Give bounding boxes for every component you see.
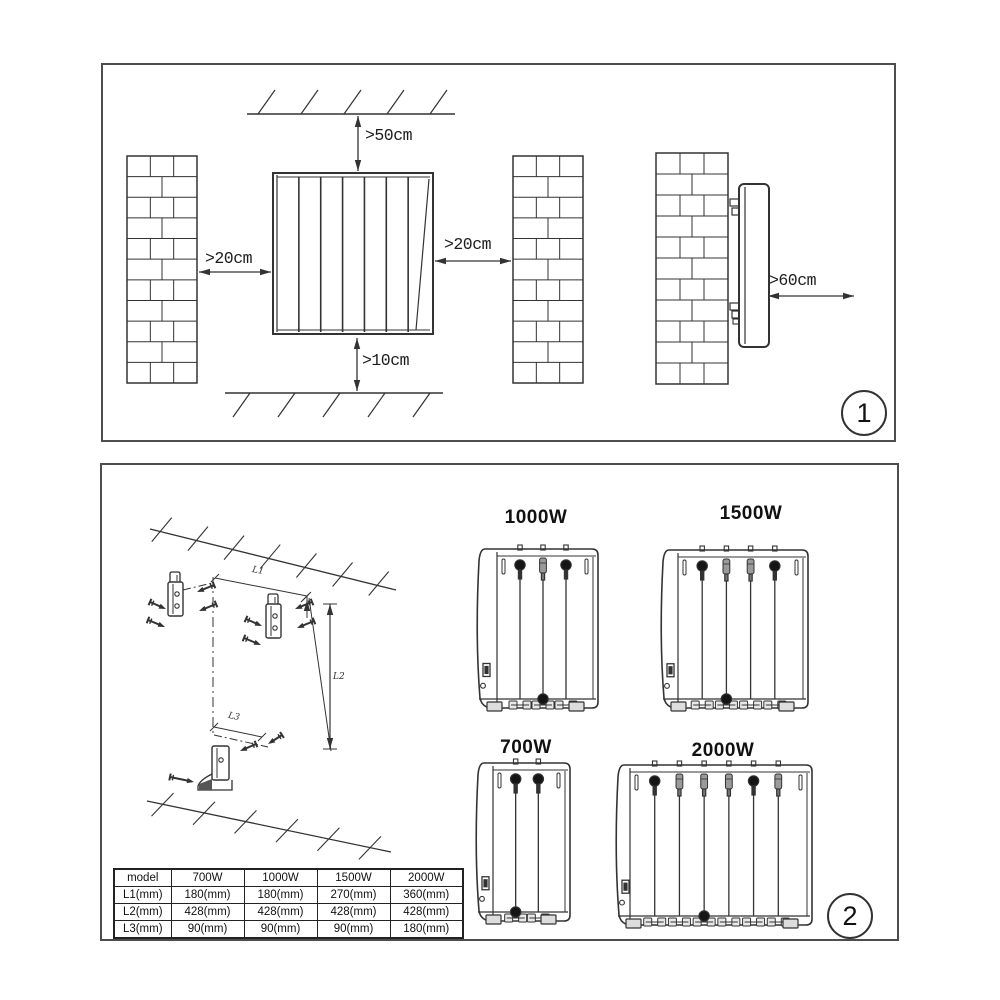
table-row: L2(mm) 428(mm) 428(mm) 428(mm) 428(mm) (114, 904, 463, 921)
table-cell: 428(mm) (171, 904, 244, 921)
unit-label-2000w: 2000W (678, 740, 768, 762)
step-2-badge: 2 (827, 893, 873, 939)
table-cell: 2000W (390, 869, 463, 887)
dim-l3-label: L3 (227, 711, 241, 723)
table-cell: L2(mm) (114, 904, 171, 921)
table-cell: 1500W (317, 869, 390, 887)
table-cell: 180(mm) (244, 887, 317, 904)
step-1-badge: 1 (841, 390, 887, 436)
table-cell: 270(mm) (317, 887, 390, 904)
installation-instructions: >50cm >20cm >20cm >10cm >60cm 1 L1 L2 L3… (0, 0, 1000, 1000)
table-cell: 428(mm) (390, 904, 463, 921)
unit-label-1000w: 1000W (491, 507, 581, 529)
clearance-right-label: >20cm (444, 235, 491, 254)
unit-label-1500w: 1500W (706, 503, 796, 525)
table-cell: L3(mm) (114, 921, 171, 939)
dim-l2-label: L2 (333, 672, 345, 682)
table-cell: 180(mm) (171, 887, 244, 904)
table-cell: 90(mm) (244, 921, 317, 939)
clearance-bottom-label: >10cm (362, 351, 409, 370)
table-cell: 1000W (244, 869, 317, 887)
table-cell: 700W (171, 869, 244, 887)
table-cell: model (114, 869, 171, 887)
dimensions-table: model 700W 1000W 1500W 2000W L1(mm) 180(… (113, 868, 464, 939)
table-cell: 180(mm) (390, 921, 463, 939)
table-cell: 90(mm) (317, 921, 390, 939)
step-1-number: 1 (856, 398, 871, 429)
step-2-number: 2 (842, 901, 857, 932)
clearance-top-label: >50cm (365, 126, 412, 145)
table-cell: 90(mm) (171, 921, 244, 939)
table-header-row: model 700W 1000W 1500W 2000W (114, 869, 463, 887)
table-cell: L1(mm) (114, 887, 171, 904)
table-cell: 428(mm) (317, 904, 390, 921)
table-row: L1(mm) 180(mm) 180(mm) 270(mm) 360(mm) (114, 887, 463, 904)
clearance-left-label: >20cm (205, 249, 252, 268)
table-row: L3(mm) 90(mm) 90(mm) 90(mm) 180(mm) (114, 921, 463, 939)
table-cell: 360(mm) (390, 887, 463, 904)
dim-l1-label: L1 (251, 565, 264, 577)
clearance-front-label: >60cm (769, 271, 816, 290)
table-cell: 428(mm) (244, 904, 317, 921)
unit-label-700w: 700W (481, 737, 571, 759)
